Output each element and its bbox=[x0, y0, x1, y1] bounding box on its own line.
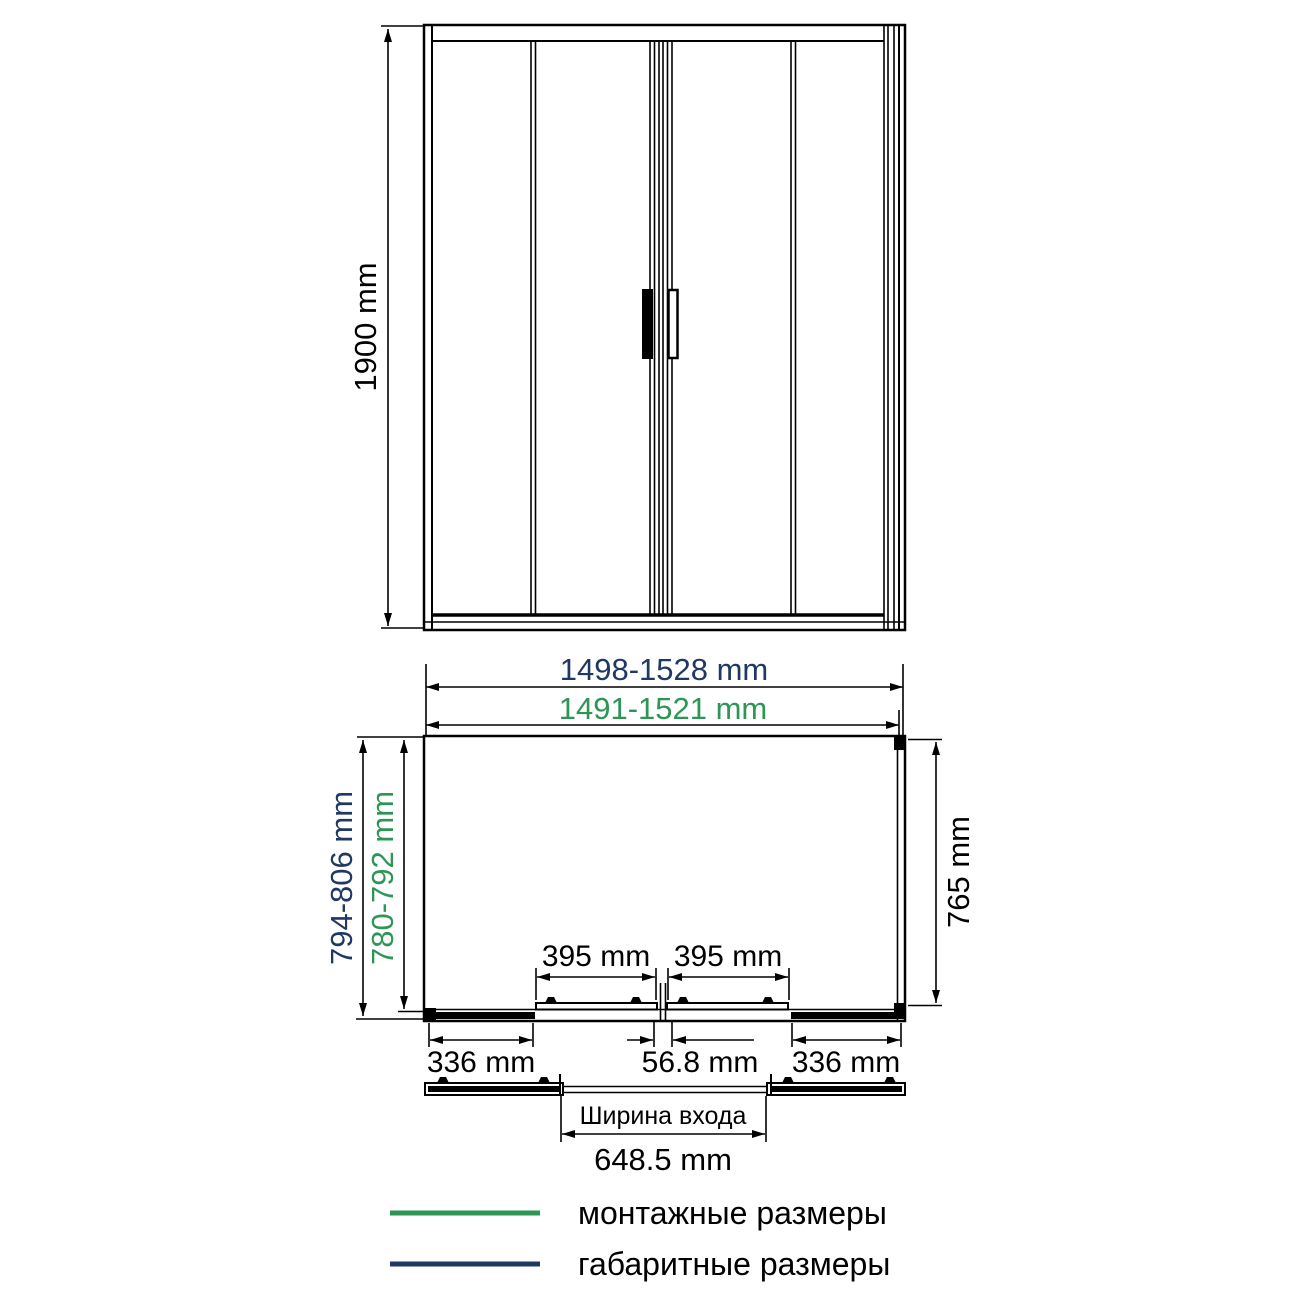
left-fixed-panel-label: 336 mm bbox=[427, 1046, 535, 1079]
legend-overall-label: габаритные размеры bbox=[578, 1246, 890, 1282]
plan-depth-dimensions-left: 794-806 mm 780-792 mm bbox=[324, 737, 424, 1019]
entrance-width-dimension: Ширина входа 648.5 mm bbox=[561, 1096, 766, 1177]
right-door-width-label: 395 mm bbox=[674, 940, 782, 973]
front-height-label: 1900 mm bbox=[348, 262, 383, 391]
plan-depth-dimension-right: 765 mm bbox=[908, 740, 976, 1006]
roller bbox=[538, 1077, 550, 1083]
plan-right-fixed-panel bbox=[791, 1012, 903, 1019]
right-fixed-panel-label: 336 mm bbox=[792, 1046, 900, 1079]
bottom-dimensions: 336 mm 56.8 mm 336 mm bbox=[427, 1022, 901, 1079]
front-view bbox=[424, 25, 905, 630]
left-door-width-label: 395 mm bbox=[542, 940, 650, 973]
right-door-handle bbox=[669, 290, 678, 358]
roller bbox=[762, 997, 774, 1003]
plan-mounting-depth-label: 780-792 mm bbox=[365, 791, 400, 965]
front-height-dimension: 1900 mm bbox=[348, 26, 424, 628]
legend-mounting-label: монтажные размеры bbox=[578, 1195, 887, 1231]
front-outer-frame bbox=[424, 25, 905, 630]
legend: монтажные размеры габаритные размеры bbox=[390, 1195, 890, 1282]
plan-left-sliding-door bbox=[536, 1003, 657, 1010]
door-width-dimensions: 395 mm 395 mm bbox=[536, 940, 789, 1000]
entrance-width-label: 648.5 mm bbox=[594, 1142, 732, 1177]
plan-mounting-width-label: 1491-1521 mm bbox=[559, 691, 768, 726]
plan-width-dimensions: 1498-1528 mm 1491-1521 mm bbox=[426, 652, 903, 737]
plan-top-right-block bbox=[894, 737, 905, 750]
plan-view bbox=[424, 736, 905, 1021]
roller bbox=[677, 997, 689, 1003]
plan-right-sliding-door bbox=[667, 1003, 788, 1010]
plan-left-fixed-panel bbox=[427, 1012, 535, 1019]
plan-overall-width-label: 1498-1528 mm bbox=[560, 652, 769, 687]
roller bbox=[545, 997, 557, 1003]
plan-overall-depth-label: 794-806 mm bbox=[324, 791, 359, 965]
plan-inner-depth-label: 765 mm bbox=[941, 816, 976, 928]
plan-outer-box bbox=[424, 736, 905, 1021]
center-overlap-label: 56.8 mm bbox=[642, 1046, 759, 1079]
left-door-handle bbox=[643, 290, 652, 358]
entrance-caption: Ширина входа bbox=[580, 1102, 747, 1130]
shower-door-dimension-drawing: 1900 mm 1498-1528 mm 1491-1521 mm bbox=[0, 0, 1300, 1300]
roller bbox=[630, 997, 642, 1003]
